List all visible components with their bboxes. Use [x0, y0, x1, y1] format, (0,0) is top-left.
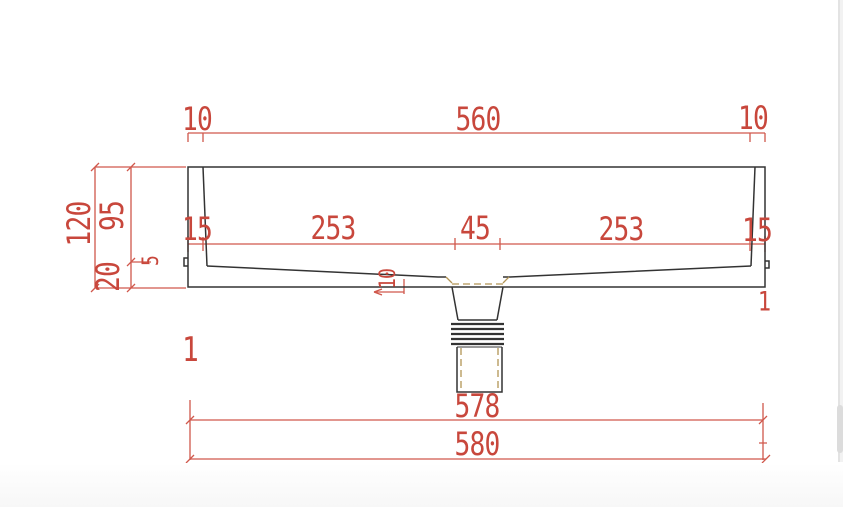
dim-drain-drop: 10	[378, 269, 400, 289]
dim-stray-right: 1	[758, 289, 771, 316]
dim-left-base: 20	[92, 262, 124, 292]
dim-top-left: 10	[182, 103, 212, 135]
dim-top-center: 560	[456, 103, 501, 135]
dim-mid-wall-right: 15	[742, 214, 772, 246]
dim-bottom-inner: 578	[455, 390, 500, 422]
dim-left-total: 120	[63, 202, 95, 247]
scrollbar-thumb[interactable]	[837, 405, 843, 453]
dim-mid-span-right: 253	[599, 213, 644, 245]
drawing-canvas: 10 560 10 15 253 45 253 15 120 95 20 5 1…	[0, 0, 843, 507]
dim-left-notch: 5	[141, 256, 163, 266]
linework-layer	[0, 0, 843, 507]
dim-stray-left: 1	[182, 333, 198, 367]
canvas-bottom-shade	[0, 463, 843, 507]
dim-mid-span-left: 253	[311, 212, 356, 244]
dim-mid-drain: 45	[460, 212, 490, 244]
dim-bottom-outer: 580	[455, 428, 500, 460]
dim-top-right: 10	[738, 102, 768, 134]
dimension-lines	[91, 133, 770, 463]
drain-threads	[451, 324, 504, 344]
drain-pipe	[451, 287, 504, 392]
dim-left-depth: 95	[96, 201, 128, 231]
dim-mid-wall-left: 15	[182, 213, 212, 245]
canvas-right-edge	[838, 0, 840, 462]
